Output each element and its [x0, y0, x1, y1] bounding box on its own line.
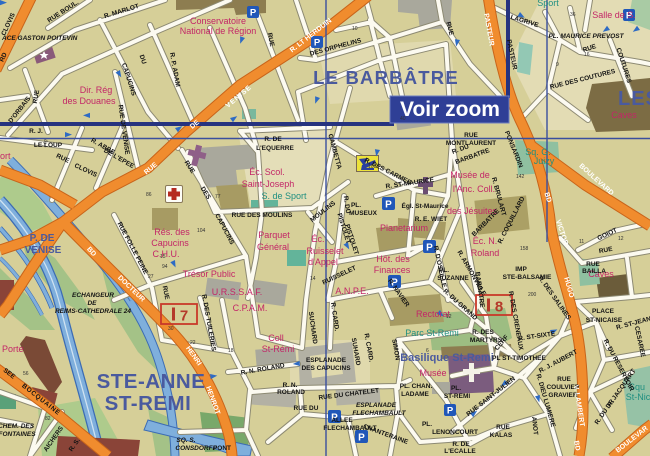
- svg-text:ROLAND: ROLAND: [277, 389, 305, 396]
- svg-text:MONTLAURENT: MONTLAURENT: [446, 140, 496, 147]
- svg-text:BAILLA: BAILLA: [582, 268, 606, 275]
- svg-text:l'Anc. Coll.: l'Anc. Coll.: [453, 184, 495, 194]
- svg-text:d'Appel: d'Appel: [308, 257, 338, 267]
- svg-text:PLACE: PLACE: [592, 308, 615, 315]
- svg-text:R. DES: R. DES: [472, 329, 494, 336]
- svg-text:SUZANNE: SUZANNE: [437, 275, 469, 282]
- svg-text:REIMS-CATHEDRALE 24: REIMS-CATHEDRALE 24: [55, 308, 131, 315]
- svg-text:Conservatoire: Conservatoire: [190, 16, 246, 26]
- svg-text:Salle de S.: Salle de S.: [592, 10, 636, 20]
- svg-text:DE: DE: [87, 300, 97, 307]
- svg-text:Musée: Musée: [419, 368, 446, 378]
- svg-text:SQ. S.: SQ. S.: [176, 437, 195, 444]
- svg-text:ST-REMI: ST-REMI: [105, 392, 192, 415]
- svg-text:IMP: IMP: [515, 266, 527, 273]
- svg-text:56: 56: [23, 371, 29, 377]
- svg-text:Éc. Scol.: Éc. Scol.: [249, 167, 285, 177]
- svg-text:ACE GASTON POITEVIN: ACE GASTON POITEVIN: [1, 35, 78, 42]
- svg-text:C.P.A.M.: C.P.A.M.: [233, 303, 268, 313]
- svg-text:Finances: Finances: [374, 265, 411, 275]
- svg-text:86: 86: [146, 192, 152, 198]
- svg-text:Rés. des: Rés. des: [154, 227, 190, 237]
- svg-text:PL.: PL.: [422, 421, 432, 428]
- svg-text:Saint-Joseph: Saint-Joseph: [242, 179, 295, 189]
- svg-text:MUSEUX: MUSEUX: [349, 210, 377, 217]
- svg-text:VENISE: VENISE: [25, 245, 62, 256]
- svg-text:Éc. N.: Éc. N.: [473, 236, 498, 246]
- svg-text:des Douanes: des Douanes: [62, 96, 116, 106]
- svg-text:6: 6: [426, 348, 429, 354]
- svg-text:Sport: Sport: [537, 0, 559, 8]
- svg-text:R. N.: R. N.: [283, 382, 298, 389]
- svg-text:L'EQUERRE: L'EQUERRE: [256, 145, 294, 152]
- svg-text:R. DE: R. DE: [452, 441, 470, 448]
- svg-text:Dir. Rég: Dir. Rég: [80, 85, 113, 95]
- svg-text:ESPLANADE: ESPLANADE: [306, 357, 347, 364]
- svg-text:RUE: RUE: [496, 424, 510, 431]
- svg-text:12: 12: [446, 314, 452, 320]
- svg-text:Planetarium: Planetarium: [380, 223, 428, 233]
- svg-text:Trésor Public: Trésor Public: [183, 269, 236, 279]
- svg-text:FONTAINES: FONTAINES: [0, 431, 36, 438]
- svg-text:St-Rémi: St-Rémi: [262, 344, 295, 354]
- svg-text:P: P: [447, 406, 454, 417]
- svg-text:Basilique St-Remi: Basilique St-Remi: [400, 352, 494, 364]
- svg-text:CHEM. DES: CHEM. DES: [0, 423, 35, 430]
- svg-text:R. J.: R. J.: [29, 128, 43, 135]
- svg-text:RUE: RUE: [464, 132, 478, 139]
- svg-text:Porte: Porte: [2, 344, 24, 354]
- svg-text:ALLEE: ALLEE: [331, 417, 353, 424]
- svg-text:STE-ANNE: STE-ANNE: [97, 370, 206, 393]
- svg-text:P: P: [385, 200, 392, 211]
- svg-text:Roland: Roland: [471, 248, 500, 258]
- svg-text:RUE DU: RUE DU: [294, 405, 319, 412]
- svg-text:Capucins: Capucins: [151, 238, 189, 248]
- svg-text:P: P: [358, 433, 365, 444]
- svg-text:PL.: PL.: [439, 267, 449, 274]
- svg-text:22: 22: [190, 340, 196, 346]
- svg-text:LADAME: LADAME: [401, 391, 429, 398]
- svg-text:PL ST-TIMOTHEE: PL ST-TIMOTHEE: [492, 355, 546, 362]
- svg-text:U.R.S.S.A.F.: U.R.S.S.A.F.: [212, 287, 263, 297]
- svg-text:R. E. WIET: R. E. WIET: [415, 216, 448, 223]
- svg-text:CONSDORFF: CONSDORFF: [175, 445, 217, 452]
- svg-text:36: 36: [570, 12, 576, 18]
- svg-text:ST-NICAISE: ST-NICAISE: [586, 317, 623, 324]
- svg-text:PL.: PL.: [451, 385, 461, 392]
- svg-text:PL. CHAN.: PL. CHAN.: [400, 383, 433, 390]
- svg-text:104: 104: [197, 228, 206, 234]
- svg-text:A.N.P.E.: A.N.P.E.: [335, 286, 368, 296]
- svg-text:11: 11: [579, 239, 584, 245]
- svg-text:P. DE: P. DE: [30, 233, 55, 244]
- svg-text:30: 30: [168, 326, 174, 332]
- svg-text:14: 14: [310, 276, 316, 282]
- svg-text:RUE: RUE: [586, 261, 600, 268]
- svg-text:142: 142: [516, 174, 525, 180]
- svg-text:P: P: [250, 8, 257, 19]
- svg-text:ECHANGEUR: ECHANGEUR: [72, 292, 114, 299]
- svg-text:Voir zoom: Voir zoom: [400, 98, 500, 121]
- svg-text:RUE DES MOULINS: RUE DES MOULINS: [232, 212, 293, 219]
- svg-text:National de Région: National de Région: [180, 26, 257, 36]
- svg-text:MARTYRS: MARTYRS: [470, 337, 503, 344]
- svg-text:94: 94: [162, 264, 168, 270]
- svg-text:P: P: [314, 38, 321, 49]
- svg-text:Éc.: Éc.: [311, 234, 324, 244]
- svg-text:12: 12: [618, 236, 624, 242]
- svg-text:77: 77: [215, 194, 221, 200]
- svg-text:ESPLANADE: ESPLANADE: [356, 402, 397, 409]
- svg-text:40: 40: [400, 116, 406, 122]
- svg-text:7: 7: [180, 308, 188, 325]
- svg-text:Parquet: Parquet: [258, 230, 290, 240]
- svg-text:FLECHAMBAULT: FLECHAMBAULT: [352, 410, 406, 417]
- svg-text:108: 108: [368, 164, 377, 170]
- svg-text:R. DE: R. DE: [264, 136, 282, 143]
- svg-text:Ruisselet: Ruisselet: [306, 246, 344, 256]
- svg-text:158: 158: [520, 246, 529, 252]
- svg-text:9: 9: [556, 62, 559, 68]
- svg-text:10: 10: [352, 26, 358, 32]
- svg-text:ST-REMI: ST-REMI: [444, 393, 471, 400]
- svg-text:82: 82: [45, 416, 51, 422]
- svg-text:Général: Général: [257, 242, 289, 252]
- svg-text:PL. MAURICE PREVOST: PL. MAURICE PREVOST: [548, 33, 624, 40]
- svg-text:DES CAPUCINS: DES CAPUCINS: [301, 365, 351, 372]
- svg-text:Juizy: Juizy: [534, 156, 555, 166]
- svg-text:Coll: Coll: [268, 333, 284, 343]
- svg-text:Égl. St-Maurice: Égl. St-Maurice: [402, 201, 449, 210]
- svg-text:LES: LES: [618, 88, 650, 110]
- svg-text:FLECHAMBAULT: FLECHAMBAULT: [323, 425, 376, 432]
- svg-text:27: 27: [148, 274, 154, 280]
- svg-text:15: 15: [160, 254, 166, 260]
- svg-text:ort: ort: [0, 151, 11, 161]
- svg-text:KALAS: KALAS: [490, 432, 513, 439]
- svg-text:8: 8: [495, 299, 503, 316]
- svg-text:LE BARBÂTRE: LE BARBÂTRE: [313, 67, 459, 88]
- svg-text:Hôt. des: Hôt. des: [376, 254, 410, 264]
- svg-text:LENONCOURT: LENONCOURT: [432, 429, 478, 436]
- svg-text:C.H.U.: C.H.U.: [153, 249, 180, 259]
- svg-text:18: 18: [228, 348, 234, 354]
- svg-text:RUE: RUE: [557, 376, 571, 383]
- svg-text:200: 200: [528, 292, 537, 298]
- svg-text:Parc St-Remi: Parc St-Remi: [405, 328, 459, 338]
- svg-text:PL.: PL.: [351, 202, 361, 209]
- svg-text:Caves: Caves: [611, 110, 637, 120]
- svg-text:L'ECALLE: L'ECALLE: [444, 448, 476, 455]
- svg-text:16: 16: [584, 52, 590, 58]
- svg-text:St-Nic: St-Nic: [626, 392, 650, 402]
- svg-text:S. de Sport: S. de Sport: [261, 191, 307, 201]
- svg-text:Musée de: Musée de: [450, 170, 490, 180]
